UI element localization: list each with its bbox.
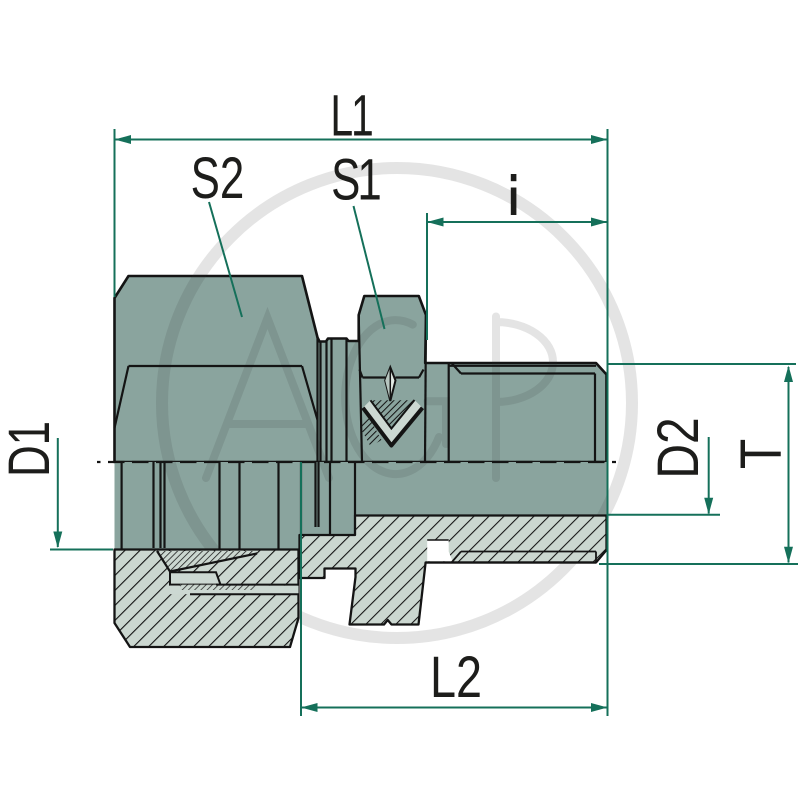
svg-text:D1: D1 bbox=[0, 421, 61, 477]
svg-text:S1: S1 bbox=[331, 146, 380, 212]
svg-text:L1: L1 bbox=[330, 82, 372, 148]
svg-text:T: T bbox=[728, 439, 794, 469]
svg-text:S2: S2 bbox=[191, 145, 245, 211]
svg-text:D2: D2 bbox=[647, 417, 712, 478]
svg-text:L2: L2 bbox=[430, 645, 482, 710]
